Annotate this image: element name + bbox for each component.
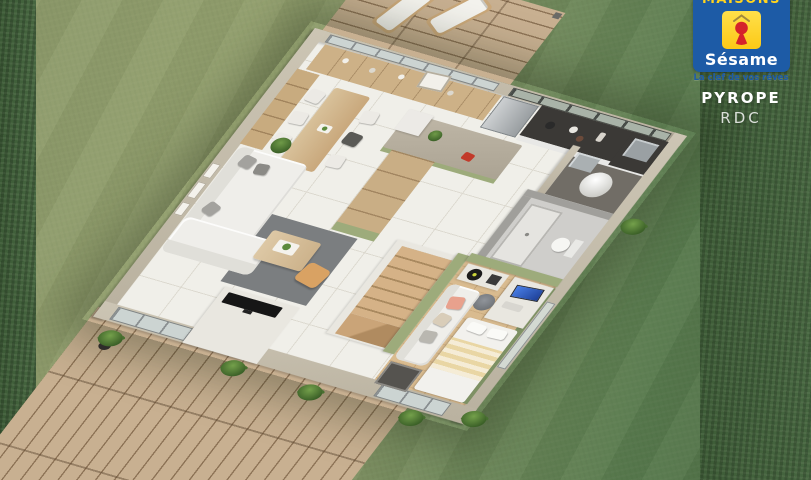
- brand-tagline: La clef de vos rêves: [676, 73, 806, 83]
- hedge-right: [700, 0, 811, 480]
- logo-yellow-square: [722, 11, 761, 49]
- logo-card: MAISONS Sésame: [693, 0, 790, 72]
- floorplan-render: MAISONS Sésame La clef de vos rêves PYRO…: [0, 0, 811, 480]
- floor-label: RDC: [676, 109, 806, 127]
- keyhole-icon: [722, 11, 761, 49]
- model-name: PYROPE: [676, 89, 806, 107]
- brand-top-label: MAISONS: [693, 0, 790, 7]
- brand-name: Sésame: [693, 50, 790, 69]
